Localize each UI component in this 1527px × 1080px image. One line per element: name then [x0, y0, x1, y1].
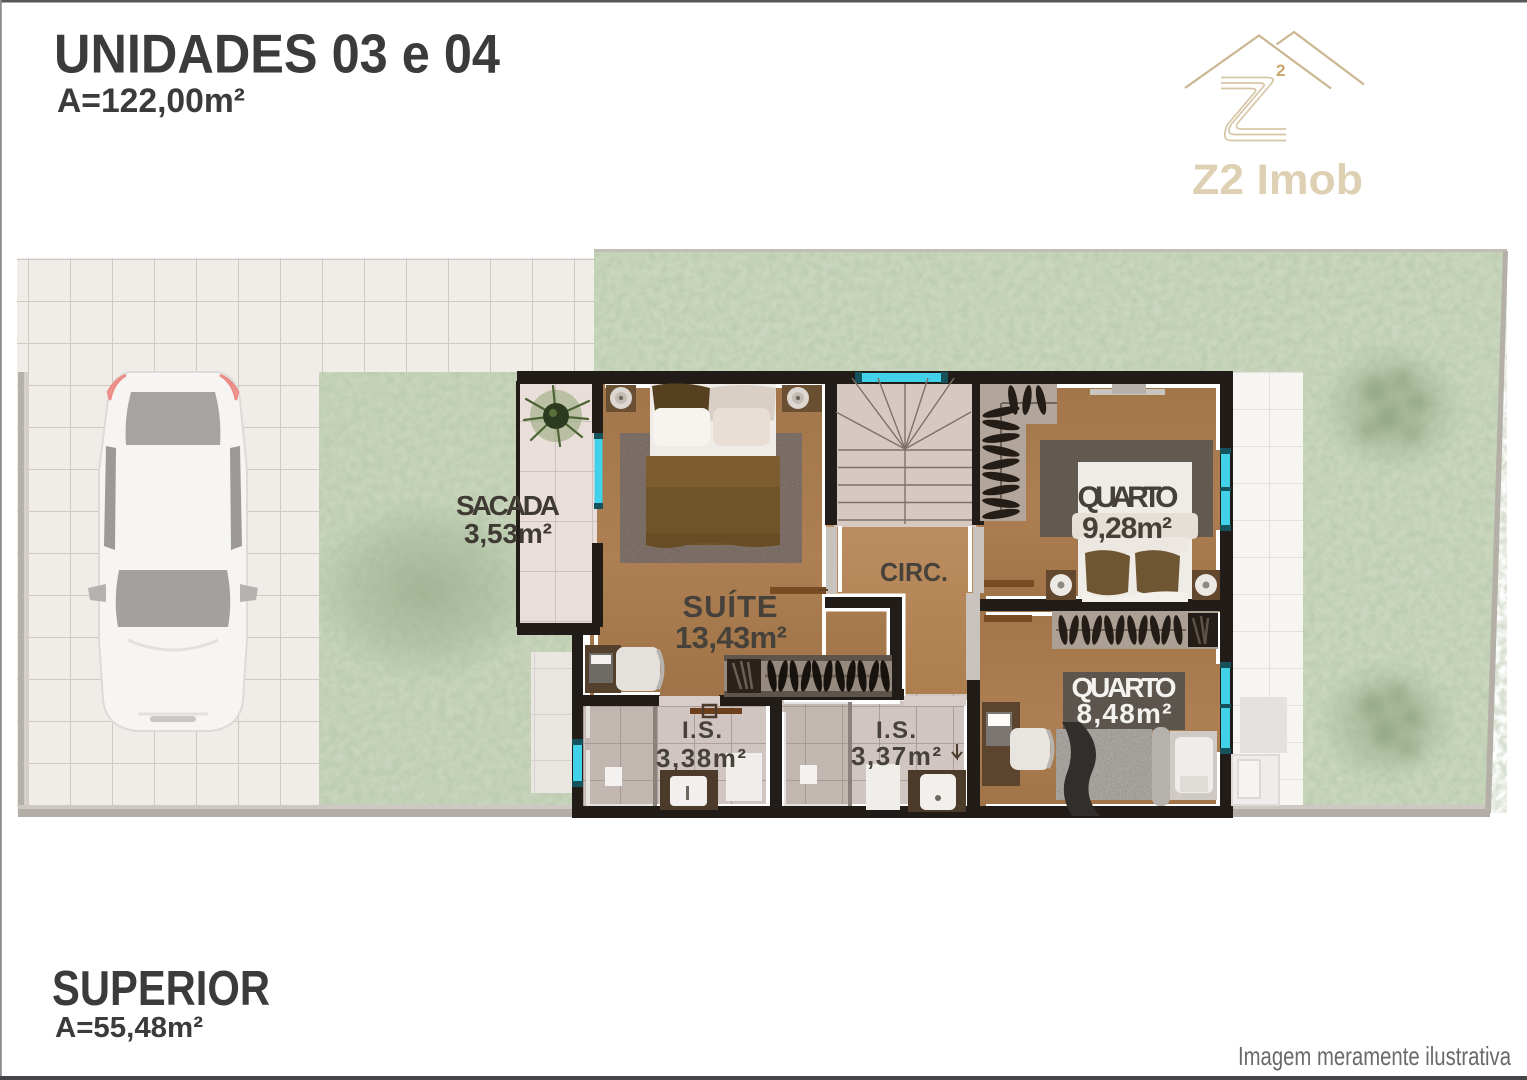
svg-text:I.S.: I.S. — [876, 717, 916, 744]
svg-text:3,53m²: 3,53m² — [464, 518, 552, 549]
svg-text:SUÍTE: SUÍTE — [683, 589, 778, 624]
svg-text:Imagem meramente ilustrativa: Imagem meramente ilustrativa — [1238, 1041, 1511, 1071]
svg-text:SACADA: SACADA — [456, 490, 560, 521]
svg-text:9,28m²: 9,28m² — [1082, 512, 1172, 545]
svg-text:2: 2 — [1276, 61, 1285, 80]
svg-text:A=122,00m²: A=122,00m² — [57, 82, 245, 120]
svg-text:SUPERIOR: SUPERIOR — [52, 962, 270, 1016]
svg-text:8,48m²: 8,48m² — [1077, 698, 1172, 729]
svg-text:Z2 Imob: Z2 Imob — [1192, 156, 1363, 204]
svg-text:A=55,48m²: A=55,48m² — [55, 1012, 203, 1044]
svg-text:CIRC.: CIRC. — [880, 557, 948, 587]
svg-text:13,43m²: 13,43m² — [675, 620, 787, 655]
svg-text:I.S.: I.S. — [682, 717, 722, 744]
svg-text:UNIDADES 03 e 04: UNIDADES 03 e 04 — [54, 23, 500, 85]
svg-text:QUARTO: QUARTO — [1078, 481, 1179, 514]
svg-text:3,38m²: 3,38m² — [656, 743, 746, 773]
svg-text:3,37m²: 3,37m² — [851, 741, 941, 771]
